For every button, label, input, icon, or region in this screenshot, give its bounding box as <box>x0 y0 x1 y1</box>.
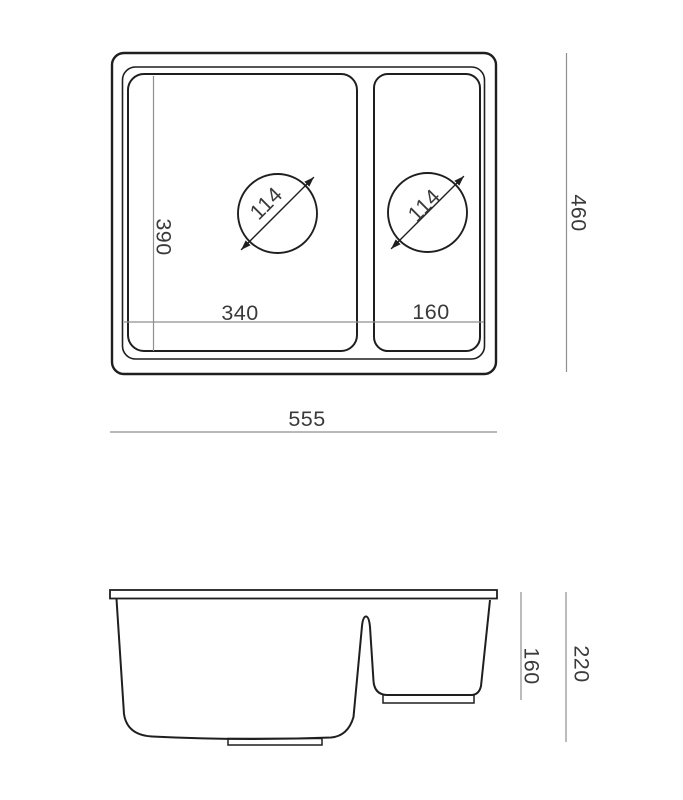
side-rim-flange <box>110 590 497 599</box>
dim-label-small-drain-diameter: 114 <box>403 184 445 226</box>
dim-label-small-bowl-width: 160 <box>412 300 449 324</box>
side-bowl-profile <box>117 599 491 739</box>
drawing-canvas: 390 340 160 460 555 114 114 160 220 <box>0 0 683 800</box>
sink-technical-drawing: 390 340 160 460 555 114 114 160 220 <box>0 0 683 800</box>
top-view: 390 340 160 460 555 114 114 <box>110 53 591 432</box>
dim-label-main-bowl-depth: 390 <box>152 218 176 255</box>
dim-label-main-drain-diameter: 114 <box>245 182 287 224</box>
sink-outer-edge <box>112 53 496 374</box>
dim-label-main-bowl-width: 340 <box>221 301 258 325</box>
dim-label-small-bowl-height: 160 <box>520 647 544 684</box>
dim-label-overall-width: 555 <box>288 407 325 431</box>
dim-label-overall-depth: 460 <box>567 194 591 231</box>
side-view: 160 220 <box>110 590 594 745</box>
small-bowl-foot <box>383 695 474 703</box>
dim-label-overall-height: 220 <box>570 645 594 682</box>
